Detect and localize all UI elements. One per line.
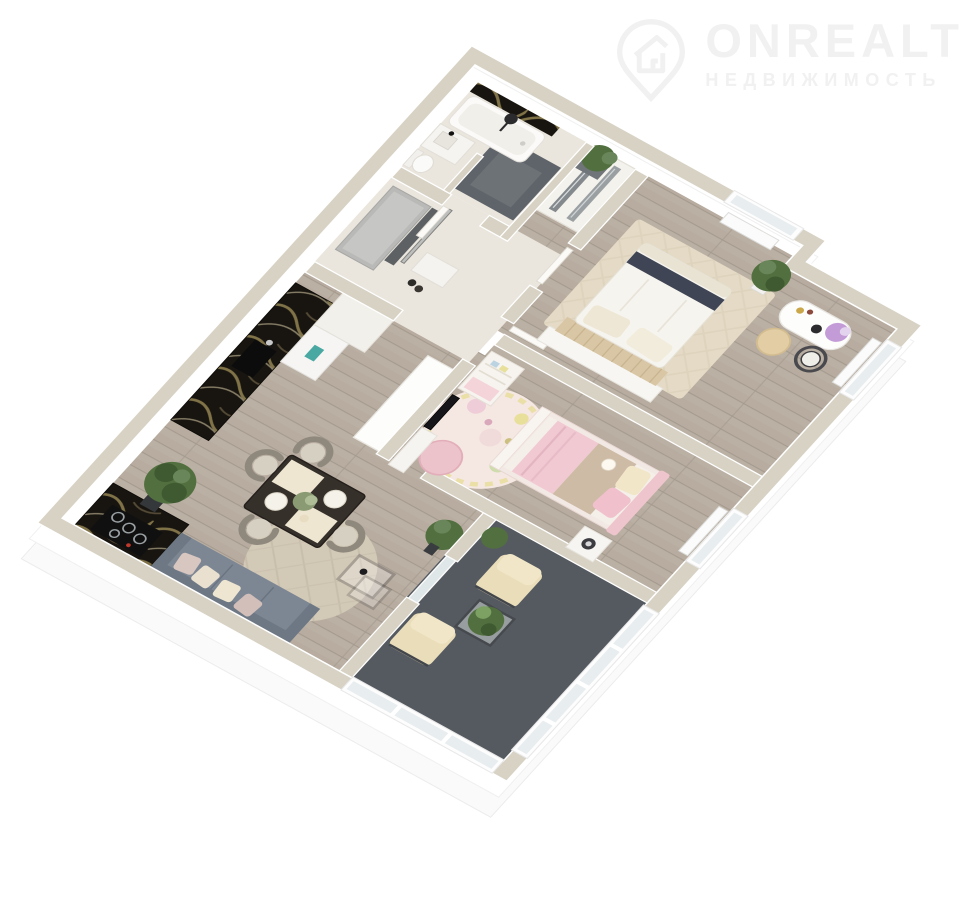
house-pin-icon <box>609 16 693 106</box>
watermark-tagline: НЕДВИЖИМОСТЬ <box>705 70 964 91</box>
watermark-text: ONREALT НЕДВИЖИМОСТЬ <box>705 16 964 91</box>
watermark-brand: ONREALT <box>705 16 964 65</box>
watermark: ONREALT НЕДВИЖИМОСТЬ <box>609 16 964 106</box>
floor-plan-stage <box>0 0 972 910</box>
floor-plan-render <box>0 0 972 910</box>
